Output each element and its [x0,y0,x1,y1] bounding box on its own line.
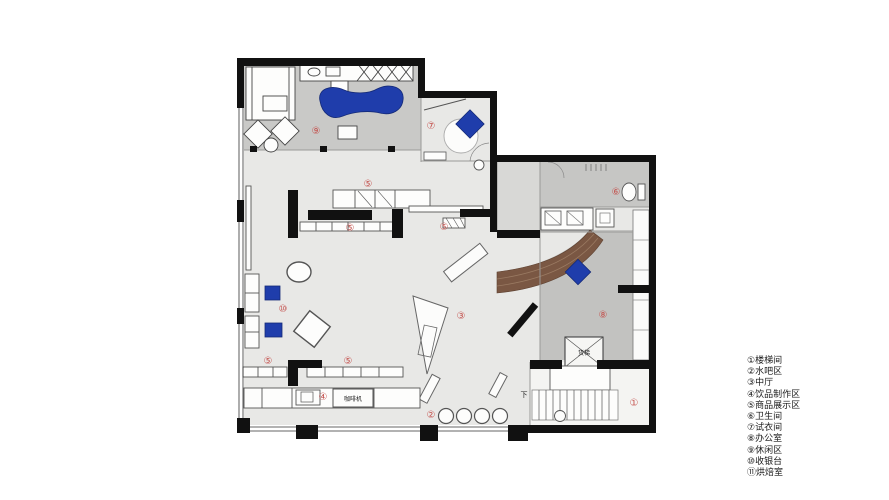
legend-item: ⑦试衣间 [747,423,800,434]
toilet [622,183,636,201]
wall-partition [490,162,497,232]
stair-down-label: 下 [521,391,528,399]
sofa [246,67,295,120]
legend-item: ⑪烘焙室 [747,468,800,479]
bar-stool [475,409,490,424]
wall-partition [392,209,403,238]
floor-corridor [497,162,540,232]
washer [596,209,614,227]
display-counter [307,367,403,377]
wall-partition [288,360,322,368]
legend-item: ③中厅 [747,378,800,389]
bar-stool [439,409,454,424]
stair-landing [550,366,610,390]
freight-elevator-label: 货梯 [578,349,590,357]
wall-bottom-solid [528,425,656,433]
legend: ①楼梯间②水吧区③中厅④饮品制作区⑤商品展示区⑥卫生间⑦试衣间⑧办公室⑨休闲区⑩… [747,356,800,479]
stool [474,160,484,170]
wall-pier [237,418,250,433]
legend-item: ①楼梯间 [747,356,800,367]
wall-step-office [618,285,649,293]
wall-stair-top [530,360,562,369]
legend-item: ⑥卫生间 [747,412,800,423]
blue-cushion [265,323,282,337]
wall-pier [237,58,244,108]
sofa-tray-table [263,96,287,111]
floorplan-page: 货梯 下 [0,0,889,500]
wardrobe-item [326,67,340,76]
legend-item: ②水吧区 [747,367,800,378]
bar-stool [493,409,508,424]
fitting-bench [424,152,446,160]
oval-table [287,262,311,282]
wall-stair-top [597,360,649,369]
wall-partition [308,210,372,220]
blue-cushion [265,286,280,300]
display-counter [333,190,430,208]
legend-item: ④饮品制作区 [747,390,800,401]
wall-top3 [490,155,656,162]
wall-pier [508,425,528,441]
toilet-tank [638,184,645,200]
display-counter [300,222,395,231]
coffee-machine-label: 咖啡机 [344,395,362,403]
legend-item: ⑧办公室 [747,434,800,445]
wall-partition [288,190,298,238]
wall-pier [296,425,318,439]
wall-fitting-right [490,91,497,162]
wall-top2 [418,91,497,98]
legend-item: ⑤商品展示区 [747,401,800,412]
bar-counter [244,388,420,408]
wall-pier [420,425,438,441]
wall-right [649,155,656,433]
wardrobe-item [308,68,320,76]
wall-pier [237,308,244,324]
blob-stool [338,126,357,139]
legend-item: ⑨休闲区 [747,446,800,457]
stair-run [532,390,618,420]
side-table [264,138,278,152]
bar-stool [457,409,472,424]
display-counter [243,367,287,377]
wall-rail [246,186,251,270]
wall-top [237,58,425,66]
legend-item: ⑩收银台 [747,457,800,468]
wall-pier [237,200,244,222]
wall-partition [497,230,540,238]
handrail-post [555,411,566,422]
